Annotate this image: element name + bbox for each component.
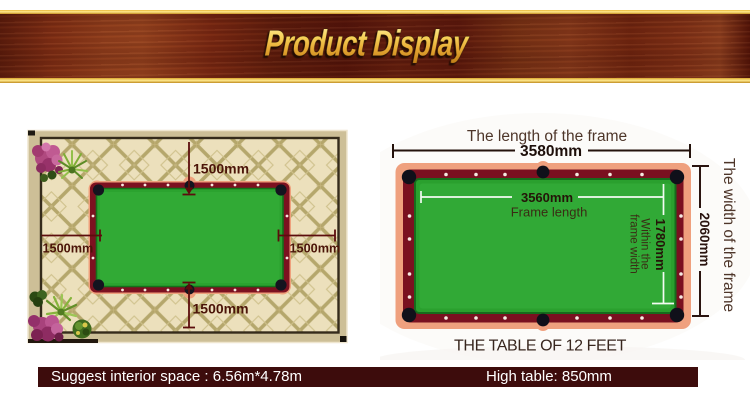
svg-text:1500mm: 1500mm — [193, 161, 249, 177]
svg-text:2060mm: 2060mm — [697, 212, 712, 266]
svg-text:Product Display: Product Display — [264, 23, 471, 63]
svg-text:THE TABLE OF 12 FEET: THE TABLE OF 12 FEET — [454, 338, 627, 355]
svg-text:frame width: frame width — [628, 214, 640, 273]
svg-text:3580mm: 3580mm — [520, 143, 582, 160]
svg-text:The width of the frame: The width of the frame — [720, 158, 737, 312]
svg-text:1500mm: 1500mm — [43, 242, 94, 256]
svg-text:1780mm: 1780mm — [653, 218, 668, 270]
svg-text:Frame length: Frame length — [511, 205, 588, 220]
svg-text:1500mm: 1500mm — [193, 301, 249, 317]
svg-text:1500mm: 1500mm — [290, 242, 341, 256]
svg-text:3560mm: 3560mm — [521, 190, 573, 205]
